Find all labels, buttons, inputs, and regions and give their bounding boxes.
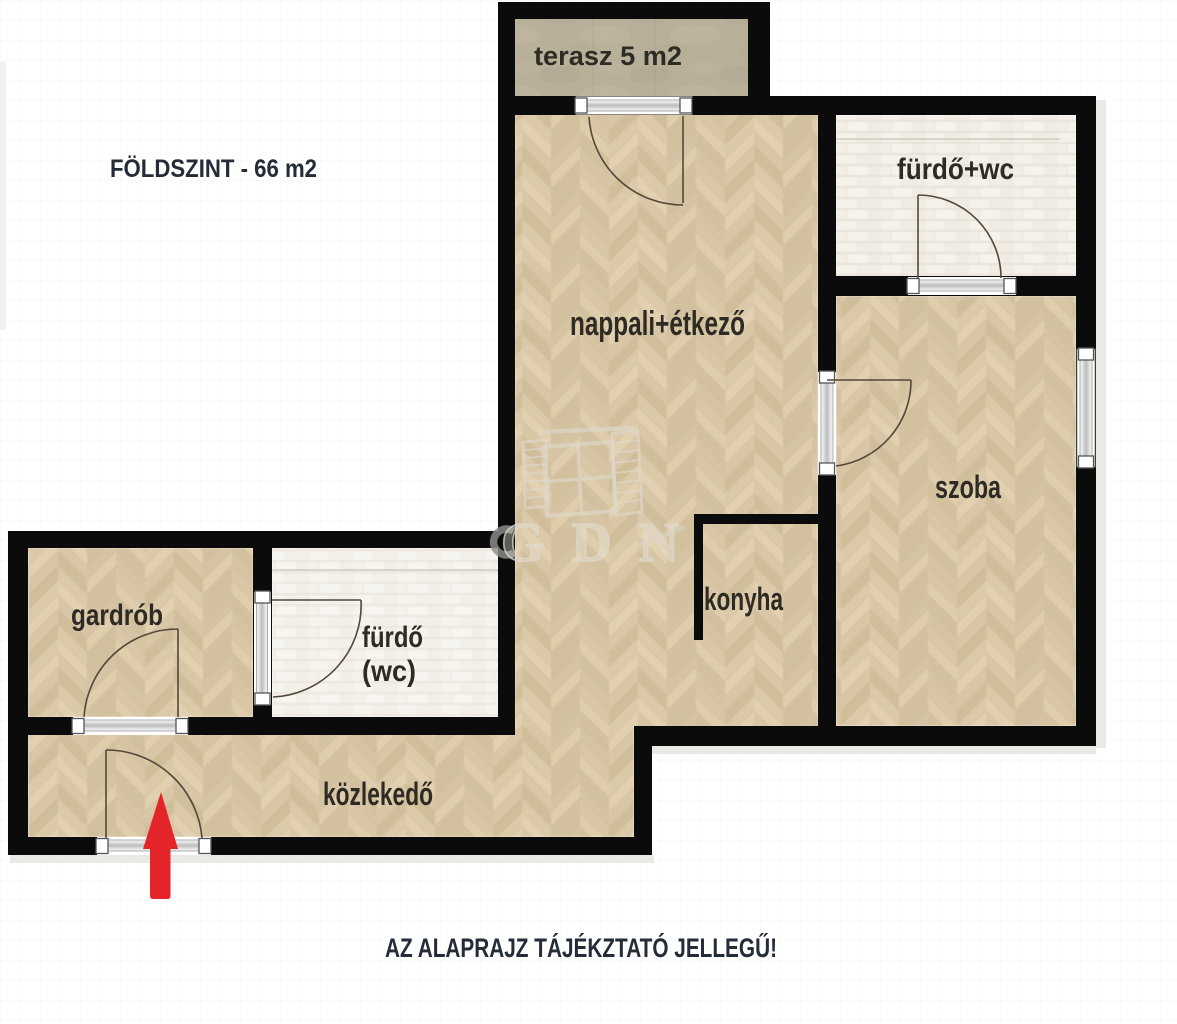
svg-text:konyha: konyha bbox=[704, 581, 783, 617]
svg-text:GDN: GDN bbox=[501, 512, 679, 574]
svg-text:nappali+étkező: nappali+étkező bbox=[570, 305, 745, 343]
svg-text:közlekedő: közlekedő bbox=[323, 776, 433, 812]
svg-text:fürdő: fürdő bbox=[362, 621, 423, 654]
svg-text:AZ ALAPRAJZ TÁJÉKZTATÓ JELLEGŰ: AZ ALAPRAJZ TÁJÉKZTATÓ JELLEGŰ! bbox=[385, 932, 777, 963]
svg-text:FÖLDSZINT - 66 m2: FÖLDSZINT - 66 m2 bbox=[110, 154, 317, 183]
svg-text:fürdő+wc: fürdő+wc bbox=[897, 153, 1014, 186]
svg-text:(wc): (wc) bbox=[362, 655, 416, 688]
svg-text:szoba: szoba bbox=[935, 469, 1001, 505]
svg-text:terasz 5 m2: terasz 5 m2 bbox=[534, 41, 682, 71]
svg-text:gardrób: gardrób bbox=[71, 599, 163, 632]
